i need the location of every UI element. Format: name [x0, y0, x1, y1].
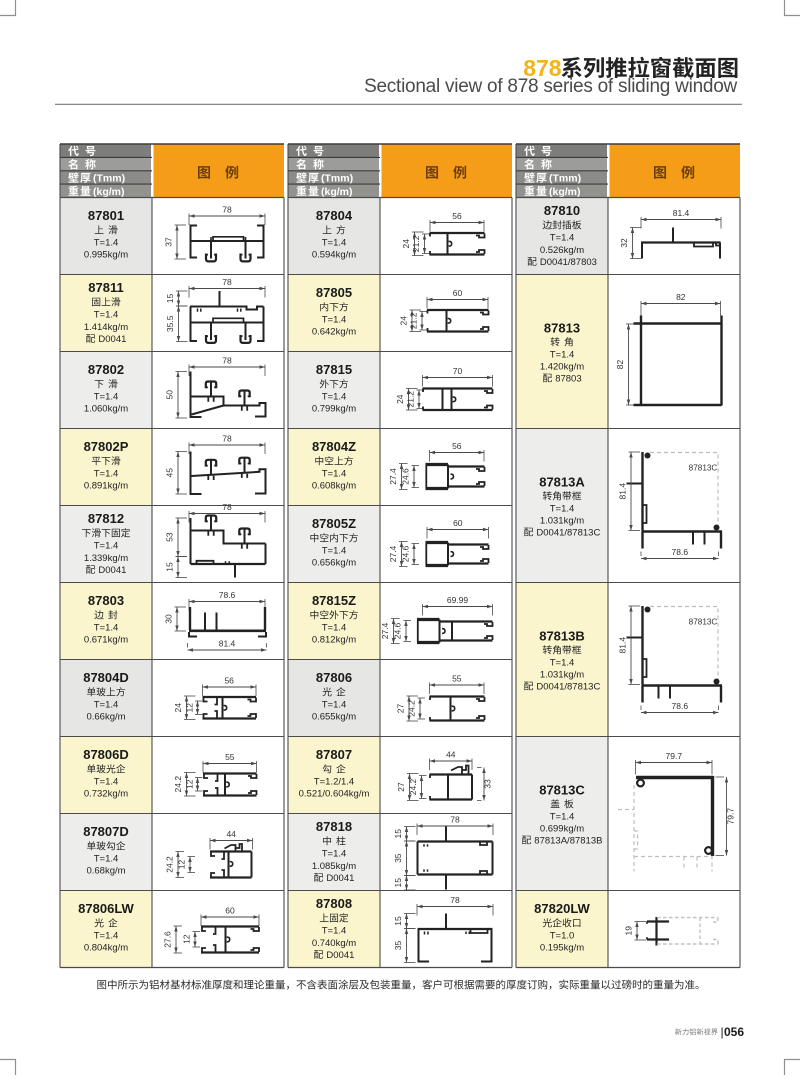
- svg-text:0.699kg/m: 0.699kg/m: [540, 823, 584, 834]
- svg-text:87813B: 87813B: [539, 629, 585, 644]
- svg-text:30: 30: [164, 614, 174, 624]
- svg-text:15: 15: [165, 562, 175, 572]
- svg-text:81.4: 81.4: [673, 208, 690, 218]
- svg-text:0.608kg/m: 0.608kg/m: [312, 480, 356, 491]
- svg-text:87811: 87811: [88, 280, 123, 295]
- svg-text:78: 78: [222, 277, 232, 287]
- svg-text:81.4: 81.4: [618, 637, 628, 654]
- svg-text:24.2: 24.2: [408, 778, 418, 795]
- svg-text:82: 82: [676, 292, 686, 302]
- svg-text:0.799kg/m: 0.799kg/m: [312, 403, 356, 414]
- svg-text:0.68kg/m: 0.68kg/m: [86, 865, 125, 876]
- svg-text:T=1.4: T=1.4: [94, 853, 119, 864]
- svg-text:56: 56: [452, 211, 462, 221]
- svg-text:27.4: 27.4: [388, 468, 398, 485]
- svg-text:T=1.4: T=1.4: [550, 349, 575, 360]
- svg-text:1.414kg/m: 1.414kg/m: [84, 322, 128, 333]
- svg-text:27: 27: [396, 704, 406, 714]
- svg-text:55: 55: [225, 752, 235, 762]
- svg-text:81.4: 81.4: [618, 483, 628, 500]
- svg-text:87810: 87810: [544, 203, 580, 218]
- svg-text:78: 78: [222, 434, 232, 444]
- svg-text:87805Z: 87805Z: [312, 516, 356, 531]
- svg-text:12: 12: [182, 934, 192, 944]
- svg-text:24: 24: [173, 703, 183, 713]
- svg-text:D0041: D0041: [326, 873, 354, 884]
- svg-text:82: 82: [615, 360, 625, 370]
- svg-text:21.2: 21.2: [406, 391, 416, 408]
- svg-text:T=1.4: T=1.4: [94, 540, 119, 551]
- svg-text:T=1.4: T=1.4: [322, 699, 347, 710]
- svg-text:0.891kg/m: 0.891kg/m: [84, 480, 128, 491]
- svg-text:1.031kg/m: 1.031kg/m: [540, 669, 584, 680]
- svg-text:1.420kg/m: 1.420kg/m: [540, 361, 584, 372]
- svg-text:T=1.4: T=1.4: [94, 930, 119, 941]
- svg-text:T=1.4: T=1.4: [94, 468, 119, 479]
- svg-text:78.6: 78.6: [672, 701, 689, 711]
- svg-text:87807: 87807: [316, 747, 352, 762]
- svg-text:12: 12: [185, 703, 195, 713]
- svg-text:78.6: 78.6: [672, 547, 689, 557]
- svg-text:33: 33: [483, 779, 493, 789]
- svg-text:15: 15: [393, 878, 403, 888]
- svg-text:T=1.4: T=1.4: [550, 811, 575, 822]
- svg-text:87820LW: 87820LW: [534, 901, 590, 916]
- svg-text:87802P: 87802P: [84, 439, 129, 454]
- svg-text:1.060kg/m: 1.060kg/m: [84, 403, 128, 414]
- svg-text:45: 45: [165, 468, 175, 478]
- svg-text:D0041: D0041: [98, 334, 126, 345]
- svg-text:37: 37: [164, 237, 174, 247]
- svg-text:T=1.2/1.4: T=1.2/1.4: [314, 776, 354, 787]
- svg-text:1.031kg/m: 1.031kg/m: [540, 515, 584, 526]
- svg-text:87815Z: 87815Z: [312, 593, 356, 608]
- svg-text:87813: 87813: [544, 321, 580, 336]
- svg-text:T=1.4: T=1.4: [322, 391, 347, 402]
- svg-text:0.655kg/m: 0.655kg/m: [312, 711, 356, 722]
- svg-text:79.7: 79.7: [666, 751, 683, 761]
- svg-text:056: 056: [724, 1025, 744, 1039]
- svg-text:D0041/87813C: D0041/87813C: [536, 527, 600, 538]
- svg-text:87806LW: 87806LW: [78, 901, 134, 916]
- svg-text:87808: 87808: [316, 896, 352, 911]
- svg-text:87801: 87801: [88, 208, 124, 223]
- svg-text:24.2: 24.2: [165, 856, 175, 873]
- svg-text:0.195kg/m: 0.195kg/m: [540, 942, 584, 953]
- svg-text:T=1.4: T=1.4: [94, 309, 119, 320]
- svg-text:(Tmm): (Tmm): [549, 172, 581, 184]
- svg-text:24.2: 24.2: [173, 776, 183, 793]
- svg-text:(kg/m): (kg/m): [321, 186, 353, 198]
- svg-text:D0041: D0041: [98, 565, 126, 576]
- svg-text:78: 78: [450, 815, 460, 825]
- svg-text:T=1.4: T=1.4: [322, 622, 347, 633]
- svg-text:87813C: 87813C: [689, 618, 718, 627]
- svg-text:53: 53: [165, 532, 175, 542]
- svg-text:27: 27: [396, 782, 406, 792]
- svg-text:56: 56: [224, 676, 234, 686]
- svg-text:Sectional view of 878 series o: Sectional view of 878 series of sliding …: [364, 76, 737, 97]
- svg-text:60: 60: [225, 906, 235, 916]
- svg-text:70: 70: [453, 366, 463, 376]
- svg-text:27.4: 27.4: [380, 622, 390, 639]
- svg-text:87805: 87805: [316, 285, 352, 300]
- svg-text:T=1.4: T=1.4: [322, 314, 347, 325]
- svg-text:12: 12: [185, 779, 195, 789]
- svg-text:T=1.4: T=1.4: [322, 545, 347, 556]
- svg-text:0.594kg/m: 0.594kg/m: [312, 249, 356, 260]
- svg-text:24.6: 24.6: [401, 468, 411, 485]
- svg-text:1.339kg/m: 1.339kg/m: [84, 553, 128, 564]
- svg-text:0.804kg/m: 0.804kg/m: [84, 942, 128, 953]
- svg-text:D0041/87813C: D0041/87813C: [536, 681, 600, 692]
- svg-text:(Tmm): (Tmm): [321, 172, 353, 184]
- svg-text:0.740kg/m: 0.740kg/m: [312, 938, 356, 949]
- svg-text:T=1.4: T=1.4: [550, 503, 575, 514]
- svg-text:60: 60: [453, 288, 463, 298]
- svg-text:24: 24: [399, 316, 409, 326]
- svg-text:T=1.4: T=1.4: [322, 848, 347, 859]
- svg-text:0.671kg/m: 0.671kg/m: [84, 634, 128, 645]
- svg-text:44: 44: [446, 750, 456, 760]
- svg-text:24.2: 24.2: [407, 700, 417, 717]
- svg-text:15: 15: [165, 294, 175, 304]
- svg-text:56: 56: [452, 441, 462, 451]
- svg-text:87813C: 87813C: [689, 464, 718, 473]
- svg-text:78: 78: [222, 502, 232, 512]
- svg-text:24.6: 24.6: [393, 622, 403, 639]
- svg-text:0.812kg/m: 0.812kg/m: [312, 634, 356, 645]
- svg-text:87806D: 87806D: [83, 747, 129, 762]
- svg-text:87807D: 87807D: [83, 824, 129, 839]
- svg-text:87803: 87803: [555, 373, 581, 384]
- svg-text:19: 19: [624, 926, 634, 936]
- svg-text:T=1.4: T=1.4: [322, 925, 347, 936]
- svg-text:15: 15: [393, 916, 403, 926]
- svg-text:T=1.4: T=1.4: [322, 237, 347, 248]
- svg-text:0.732kg/m: 0.732kg/m: [84, 788, 128, 799]
- svg-text:24: 24: [401, 239, 411, 249]
- svg-text:27.4: 27.4: [388, 545, 398, 562]
- svg-text:44: 44: [226, 829, 236, 839]
- svg-text:0.995kg/m: 0.995kg/m: [84, 249, 128, 260]
- svg-text:27.6: 27.6: [163, 931, 173, 948]
- svg-text:50: 50: [165, 390, 175, 400]
- svg-text:(kg/m): (kg/m): [549, 186, 581, 198]
- svg-text:81.4: 81.4: [219, 639, 236, 649]
- svg-text:55: 55: [452, 674, 462, 684]
- svg-text:21.2: 21.2: [409, 312, 419, 329]
- svg-text:T=1.4: T=1.4: [94, 699, 119, 710]
- svg-text:87804Z: 87804Z: [312, 439, 356, 454]
- svg-text:35: 35: [393, 853, 403, 863]
- svg-text:24: 24: [395, 394, 405, 404]
- svg-text:60: 60: [453, 518, 463, 528]
- svg-text:87802: 87802: [88, 362, 124, 377]
- svg-text:T=1.0: T=1.0: [550, 930, 575, 941]
- svg-text:T=1.4: T=1.4: [550, 657, 575, 668]
- svg-text:87804: 87804: [316, 208, 353, 223]
- svg-text:21.2: 21.2: [411, 235, 421, 252]
- svg-text:T=1.4: T=1.4: [322, 468, 347, 479]
- svg-text:D0041: D0041: [326, 950, 354, 961]
- svg-text:87812: 87812: [88, 511, 124, 526]
- svg-text:(kg/m): (kg/m): [93, 186, 125, 198]
- svg-text:12: 12: [177, 860, 187, 870]
- svg-text:0.656kg/m: 0.656kg/m: [312, 557, 356, 568]
- svg-text:T=1.4: T=1.4: [94, 622, 119, 633]
- svg-text:78: 78: [450, 895, 460, 905]
- svg-text:87818: 87818: [316, 819, 352, 834]
- svg-text:79.7: 79.7: [726, 808, 736, 825]
- svg-text:87804D: 87804D: [83, 670, 129, 685]
- svg-text:32: 32: [619, 238, 629, 248]
- svg-text:35: 35: [393, 941, 403, 951]
- svg-text:87803: 87803: [88, 593, 124, 608]
- svg-text:T=1.4: T=1.4: [94, 776, 119, 787]
- svg-text:35.5: 35.5: [165, 315, 175, 332]
- svg-text:87813A/87813B: 87813A/87813B: [534, 835, 602, 846]
- svg-text:0.526kg/m: 0.526kg/m: [540, 245, 584, 256]
- svg-text:78.6: 78.6: [219, 590, 236, 600]
- svg-text:78: 78: [222, 356, 232, 366]
- svg-text:87813A: 87813A: [539, 475, 585, 490]
- svg-text:T=1.4: T=1.4: [94, 237, 119, 248]
- svg-text:87806: 87806: [316, 670, 352, 685]
- svg-text:87815: 87815: [316, 362, 352, 377]
- svg-text:24.6: 24.6: [401, 545, 411, 562]
- svg-text:(Tmm): (Tmm): [93, 172, 125, 184]
- svg-text:69.99: 69.99: [447, 595, 469, 605]
- svg-text:T=1.4: T=1.4: [94, 391, 119, 402]
- svg-text:0.642kg/m: 0.642kg/m: [312, 326, 356, 337]
- svg-text:D0041/87803: D0041/87803: [540, 257, 597, 268]
- svg-text:78: 78: [222, 205, 232, 215]
- svg-text:1.085kg/m: 1.085kg/m: [312, 861, 356, 872]
- svg-text:0.521/0.604kg/m: 0.521/0.604kg/m: [299, 788, 370, 799]
- svg-text:87813C: 87813C: [539, 783, 585, 798]
- svg-text:15: 15: [393, 829, 403, 839]
- svg-text:0.66kg/m: 0.66kg/m: [86, 711, 125, 722]
- svg-text:T=1.4: T=1.4: [550, 232, 575, 243]
